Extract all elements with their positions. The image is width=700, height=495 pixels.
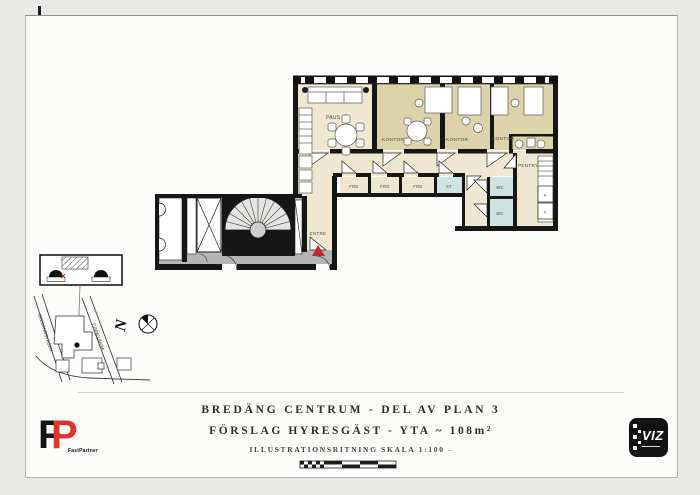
- scale-bar: [300, 461, 396, 468]
- fastpartner-name: FastPartner: [68, 448, 98, 454]
- location-dot: [74, 342, 79, 347]
- north-letter: N: [112, 317, 131, 334]
- label-frd-2: FRD: [380, 184, 390, 189]
- site-map: BREDÄNGSVÄGEN TUNNELBANA: [34, 255, 150, 384]
- label-frys: F: [544, 210, 547, 215]
- desk: [425, 87, 452, 113]
- desk: [458, 87, 481, 115]
- label-kontor-2: KONTOR: [446, 137, 468, 143]
- label-paus: PAUS: [326, 115, 341, 121]
- label-wc-1: WC: [496, 185, 504, 190]
- sink: [527, 138, 535, 147]
- round-table: [335, 124, 357, 146]
- title-line-2: FÖRSLAG HYRESGÄST - YTA ~ 108m²: [26, 425, 676, 437]
- window-wall: [293, 76, 558, 84]
- viz-logo: VIZ: [629, 418, 668, 457]
- toilet: [537, 140, 545, 148]
- column: [302, 87, 308, 93]
- fastpartner-logo: F P FastPartner: [38, 415, 108, 465]
- shaft: [187, 198, 196, 254]
- label-kontor-1: KONTOR: [382, 137, 404, 143]
- viz-wordmark: VIZ: [642, 428, 664, 443]
- title-line-1: BREDÄNG CENTRUM - DEL AV PLAN 3: [26, 404, 676, 416]
- north-compass: N: [112, 315, 157, 334]
- stairwell: [159, 197, 302, 262]
- desk: [524, 87, 543, 115]
- building-footprint: [54, 316, 92, 358]
- label-kontor-3: KONTOR: [492, 136, 514, 142]
- toilet: [515, 140, 523, 148]
- label-pentry: PENTRY: [518, 163, 538, 168]
- label-st: ST: [446, 184, 452, 189]
- column: [363, 87, 369, 93]
- station-marker: [98, 363, 104, 369]
- street-label-1: BREDÄNGSVÄGEN: [37, 313, 54, 352]
- label-kyl: K: [544, 193, 547, 198]
- desk: [491, 87, 508, 115]
- title-divider-line: [78, 392, 624, 393]
- drawing-page: { "title_block": { "line1": "BREDÄNG CEN…: [0, 0, 700, 495]
- title-line-3: ILLUSTRATIONSRITNING SKALA 1:100 -: [26, 445, 676, 454]
- label-wc-2: WC: [496, 211, 504, 216]
- sofa: [308, 87, 362, 103]
- street-label-2: TUNNELBANA: [91, 322, 106, 351]
- label-frd-1: FRD: [349, 184, 359, 189]
- label-entre: ENTRE: [309, 231, 326, 236]
- viz-subtext-line: [642, 446, 660, 447]
- label-frd-3: FRD: [413, 184, 423, 189]
